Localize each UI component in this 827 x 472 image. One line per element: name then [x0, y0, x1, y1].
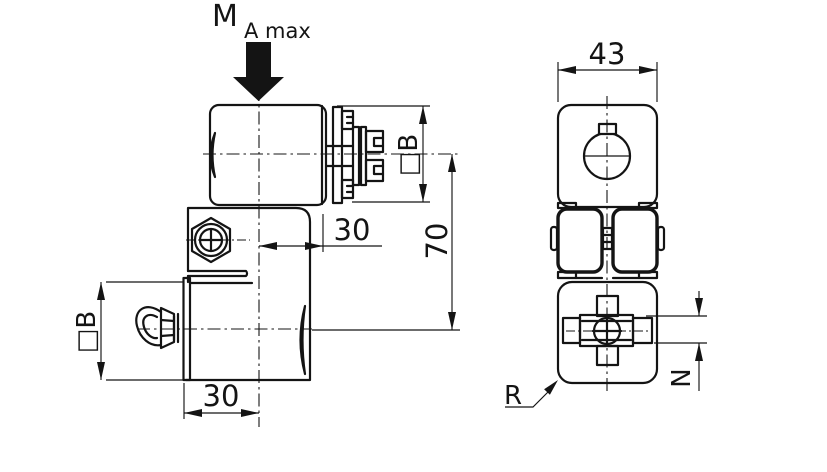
moment-arrow-icon — [233, 42, 284, 101]
upper-clamp-screw — [327, 127, 383, 185]
drawing-canvas: M A max 43 □B 70 30 — [0, 0, 827, 472]
moment-annotation: M A max — [212, 0, 311, 101]
dimension-30-mid: 30 — [259, 213, 382, 252]
dim-b-lower-text: □B — [72, 311, 102, 353]
dimension-30-bottom: 30 — [184, 379, 259, 419]
tube-curvature-arc — [301, 306, 306, 374]
dimension-43: 43 — [558, 37, 657, 102]
clamp-body — [186, 208, 310, 380]
hex-bolt — [186, 218, 250, 262]
technical-drawing: M A max 43 □B 70 30 — [0, 0, 827, 472]
dim-30-mid-text: 30 — [334, 213, 371, 247]
radius-arrow-icon — [544, 380, 558, 395]
tube-curvature-arc — [211, 133, 216, 177]
dim-30-bottom-text: 30 — [203, 379, 240, 413]
dimension-square-b-lower: □B — [72, 282, 183, 380]
dim-n-text: N — [667, 368, 697, 387]
upper-tube — [210, 105, 326, 205]
upper-clamp-plate — [333, 107, 353, 203]
moment-subscript-label: A max — [244, 19, 311, 43]
radius-annotation: R — [504, 380, 558, 411]
side-view — [551, 96, 664, 392]
dim-70-text: 70 — [420, 223, 454, 260]
left-tab — [551, 227, 557, 250]
dim-43-text: 43 — [589, 37, 626, 71]
moment-label: M — [212, 0, 238, 34]
dim-b-upper-text: □B — [394, 134, 424, 176]
right-tab — [658, 227, 664, 250]
lower-clamp-screw — [136, 307, 178, 348]
